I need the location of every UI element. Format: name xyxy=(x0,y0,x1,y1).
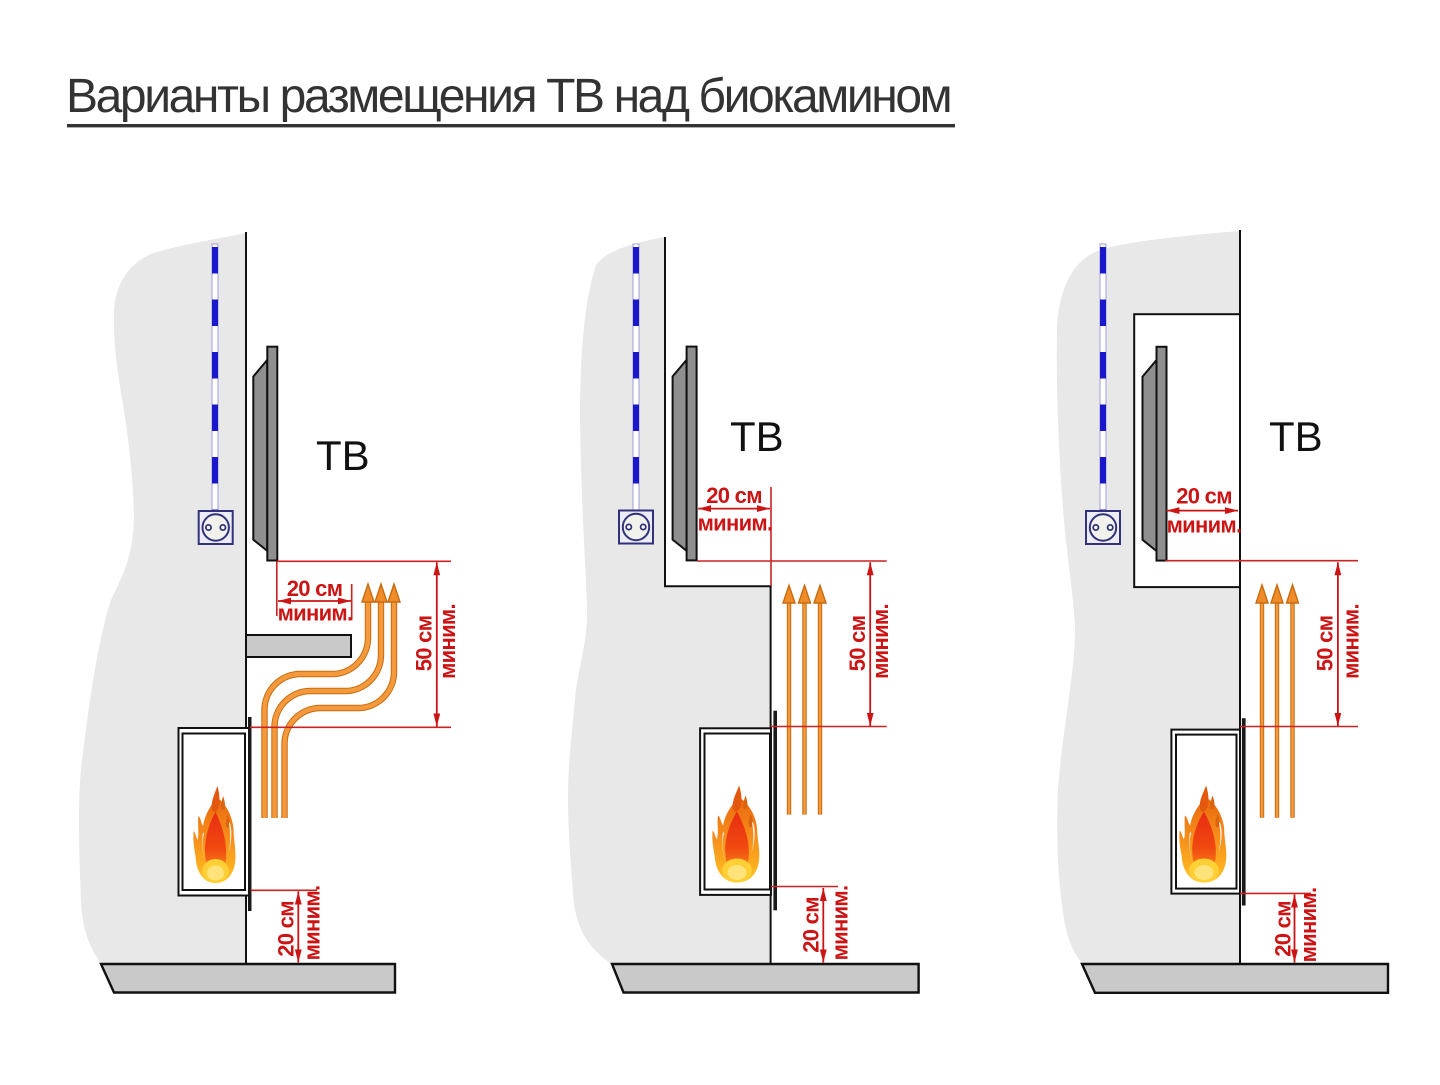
svg-text:20 см: 20 см xyxy=(706,483,762,508)
svg-text:ТВ: ТВ xyxy=(1269,413,1323,460)
svg-text:миним.: миним. xyxy=(828,886,853,961)
svg-text:20 см: 20 см xyxy=(274,901,299,957)
svg-text:миним.: миним. xyxy=(278,601,353,626)
svg-text:ТВ: ТВ xyxy=(730,413,784,460)
svg-text:миним.: миним. xyxy=(868,604,893,679)
svg-text:ТВ: ТВ xyxy=(316,432,370,479)
svg-text:миним.: миним. xyxy=(435,604,460,679)
svg-text:миним.: миним. xyxy=(1339,604,1364,679)
svg-text:миним.: миним. xyxy=(1167,513,1242,538)
svg-text:50 см: 50 см xyxy=(1313,616,1338,672)
svg-text:миним.: миним. xyxy=(1296,888,1321,963)
svg-text:50 см: 50 см xyxy=(412,616,437,672)
svg-text:Варианты размещения ТВ над био: Варианты размещения ТВ над биокамином xyxy=(66,70,950,123)
svg-text:миним.: миним. xyxy=(300,886,325,961)
svg-text:50 см: 50 см xyxy=(845,616,870,672)
svg-text:20 см: 20 см xyxy=(799,897,824,953)
svg-text:20 см: 20 см xyxy=(1271,901,1296,957)
svg-text:миним.: миним. xyxy=(698,511,773,536)
svg-text:20 см: 20 см xyxy=(287,576,343,601)
svg-text:20 см: 20 см xyxy=(1176,484,1232,509)
